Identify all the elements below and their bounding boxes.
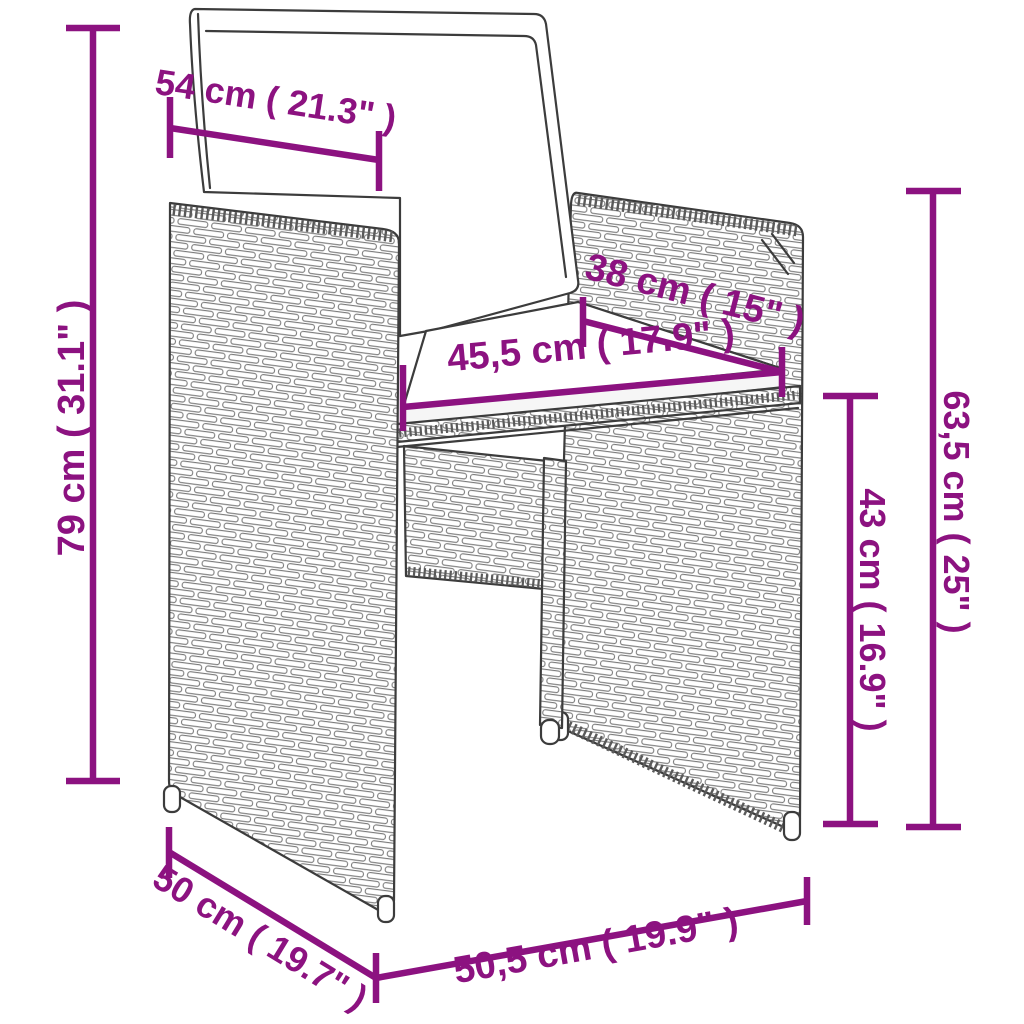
front-right-leg — [540, 458, 566, 744]
dim-79-label: 79 cm ( 31.1" ) — [51, 300, 93, 557]
front-right-leg-weave — [540, 458, 566, 728]
left-panel-foot-back — [164, 786, 180, 812]
dimension-front-base-width: 50,5 cm ( 19.9" ) — [376, 877, 807, 1003]
front-apron-weave — [404, 446, 557, 590]
dimension-armrest-height: 63,5 cm ( 25" ) — [906, 191, 977, 827]
right-panel-foot-right — [784, 812, 800, 840]
left-panel-weave — [169, 203, 399, 912]
wicker-chair-illustration — [164, 9, 803, 922]
dim-635-label: 63,5 cm ( 25" ) — [936, 390, 977, 633]
dimension-seat-height: 43 cm ( 16.9" ) — [823, 396, 893, 824]
diagram-canvas: 54 cm ( 21.3" ) 79 cm ( 31.1" ) 38 cm ( … — [0, 0, 1024, 1024]
front-apron — [404, 446, 557, 590]
dim-43-label: 43 cm ( 16.9" ) — [852, 488, 893, 731]
dim-505-label: 50,5 cm ( 19.9" ) — [450, 900, 741, 992]
chair-left-panel — [164, 203, 399, 922]
chair-dimensions-diagram: 54 cm ( 21.3" ) 79 cm ( 31.1" ) 38 cm ( … — [0, 0, 1024, 1024]
front-right-leg-foot — [541, 720, 559, 744]
left-panel-foot-front — [378, 896, 394, 922]
dimension-total-height: 79 cm ( 31.1" ) — [51, 28, 120, 781]
